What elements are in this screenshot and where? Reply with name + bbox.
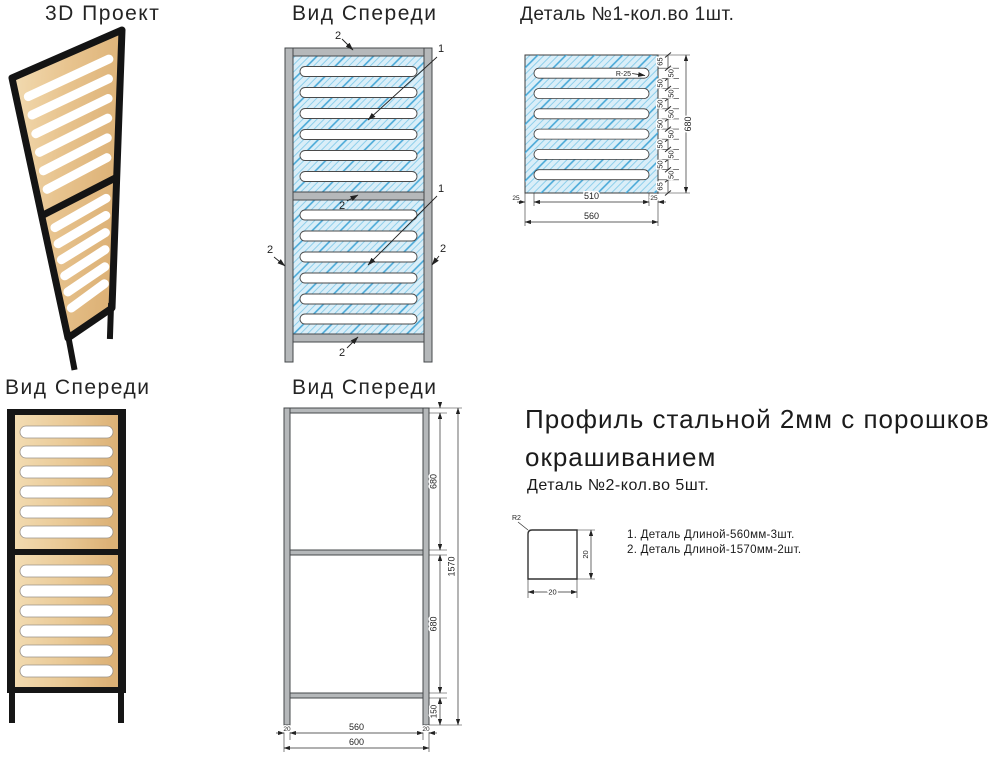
svg-text:2: 2 [339, 200, 345, 212]
svg-text:680: 680 [429, 474, 439, 489]
right-extension-lines [429, 408, 462, 725]
svg-text:50: 50 [667, 110, 676, 118]
spec-subtitle: Деталь №2-кол.во 5шт. [527, 477, 709, 495]
svg-text:560: 560 [584, 211, 599, 221]
overall-height-dimension: 680 [683, 55, 693, 193]
svg-text:680: 680 [683, 116, 693, 131]
svg-text:50: 50 [656, 79, 665, 87]
svg-text:R-25: R-25 [616, 71, 631, 78]
front-view-top-drawing: 2 1 2 1 2 2 2 [262, 25, 457, 375]
profile-square [528, 530, 577, 579]
title-detail1: Деталь №1-кол.во 1шт. [520, 4, 734, 26]
detail1-drawing: R-25 65 50 50 50 50 50 50 50 50 50 50 50… [505, 30, 720, 245]
svg-text:50: 50 [667, 130, 676, 138]
svg-text:50: 50 [656, 160, 665, 168]
right-dimension-labels: 680 680 150 [429, 474, 439, 718]
profile-section-drawing: R2 20 20 [505, 508, 625, 603]
svg-text:50: 50 [667, 171, 676, 179]
width-dimension: 20 [528, 579, 577, 598]
3d-panel-render [0, 25, 190, 375]
svg-text:2: 2 [339, 347, 345, 359]
bottom-dimensions: 560 20 20 600 [276, 722, 437, 752]
radius-callout: R2 [512, 515, 528, 530]
svg-text:510: 510 [584, 191, 599, 201]
svg-text:1: 1 [438, 183, 444, 195]
title-3d-view: 3D Проект [45, 2, 160, 26]
svg-text:2: 2 [335, 30, 341, 42]
spec-heading-line1: Профиль стальной 2мм с порошковым [525, 404, 991, 435]
front-view-wood-drawing [0, 403, 140, 733]
svg-text:50: 50 [667, 69, 676, 77]
svg-text:600: 600 [349, 737, 364, 747]
bottom-dimensions: 510 25 25 560 [512, 191, 666, 226]
svg-text:50: 50 [656, 100, 665, 108]
overall-height-dimension: 1570 [447, 408, 459, 725]
drawing-sheet: { "titles": { "view3d": "3D Проект", "fr… [0, 0, 991, 760]
frame-view-drawing: 680 680 150 1570 560 20 20 600 [262, 400, 477, 760]
svg-text:2: 2 [267, 244, 273, 256]
svg-text:20: 20 [581, 550, 590, 558]
svg-text:50: 50 [656, 140, 665, 148]
svg-text:50: 50 [667, 89, 676, 97]
svg-text:25: 25 [650, 195, 658, 202]
svg-text:20: 20 [422, 726, 430, 733]
svg-text:R2: R2 [512, 515, 521, 522]
title-front-bottom-left: Вид Спереди [5, 376, 150, 400]
title-front-top: Вид Спереди [292, 2, 437, 26]
svg-text:25: 25 [512, 195, 520, 202]
svg-text:1: 1 [438, 43, 444, 55]
svg-text:150: 150 [430, 704, 439, 718]
spec-notes: 1. Деталь Длиной-560мм-3шт. 2. Деталь Дл… [627, 528, 801, 558]
svg-text:560: 560 [349, 722, 364, 732]
spec-heading-line2: окрашиванием [525, 442, 716, 473]
height-dimension: 20 [577, 530, 595, 579]
spec-note-2: 2. Деталь Длиной-1570мм-2шт. [627, 543, 801, 558]
svg-text:2: 2 [440, 243, 446, 255]
svg-text:50: 50 [667, 150, 676, 158]
svg-text:50: 50 [656, 120, 665, 128]
svg-text:65: 65 [656, 57, 665, 65]
steel-frame-members [284, 408, 429, 725]
svg-text:65: 65 [656, 182, 665, 190]
spec-note-1: 1. Деталь Длиной-560мм-3шт. [627, 528, 801, 543]
title-front-bottom-mid: Вид Спереди [292, 376, 437, 400]
wood-frame-legs [9, 693, 124, 723]
svg-text:680: 680 [429, 616, 439, 631]
svg-text:20: 20 [548, 588, 556, 597]
svg-text:1570: 1570 [447, 556, 457, 576]
svg-text:20: 20 [283, 726, 291, 733]
